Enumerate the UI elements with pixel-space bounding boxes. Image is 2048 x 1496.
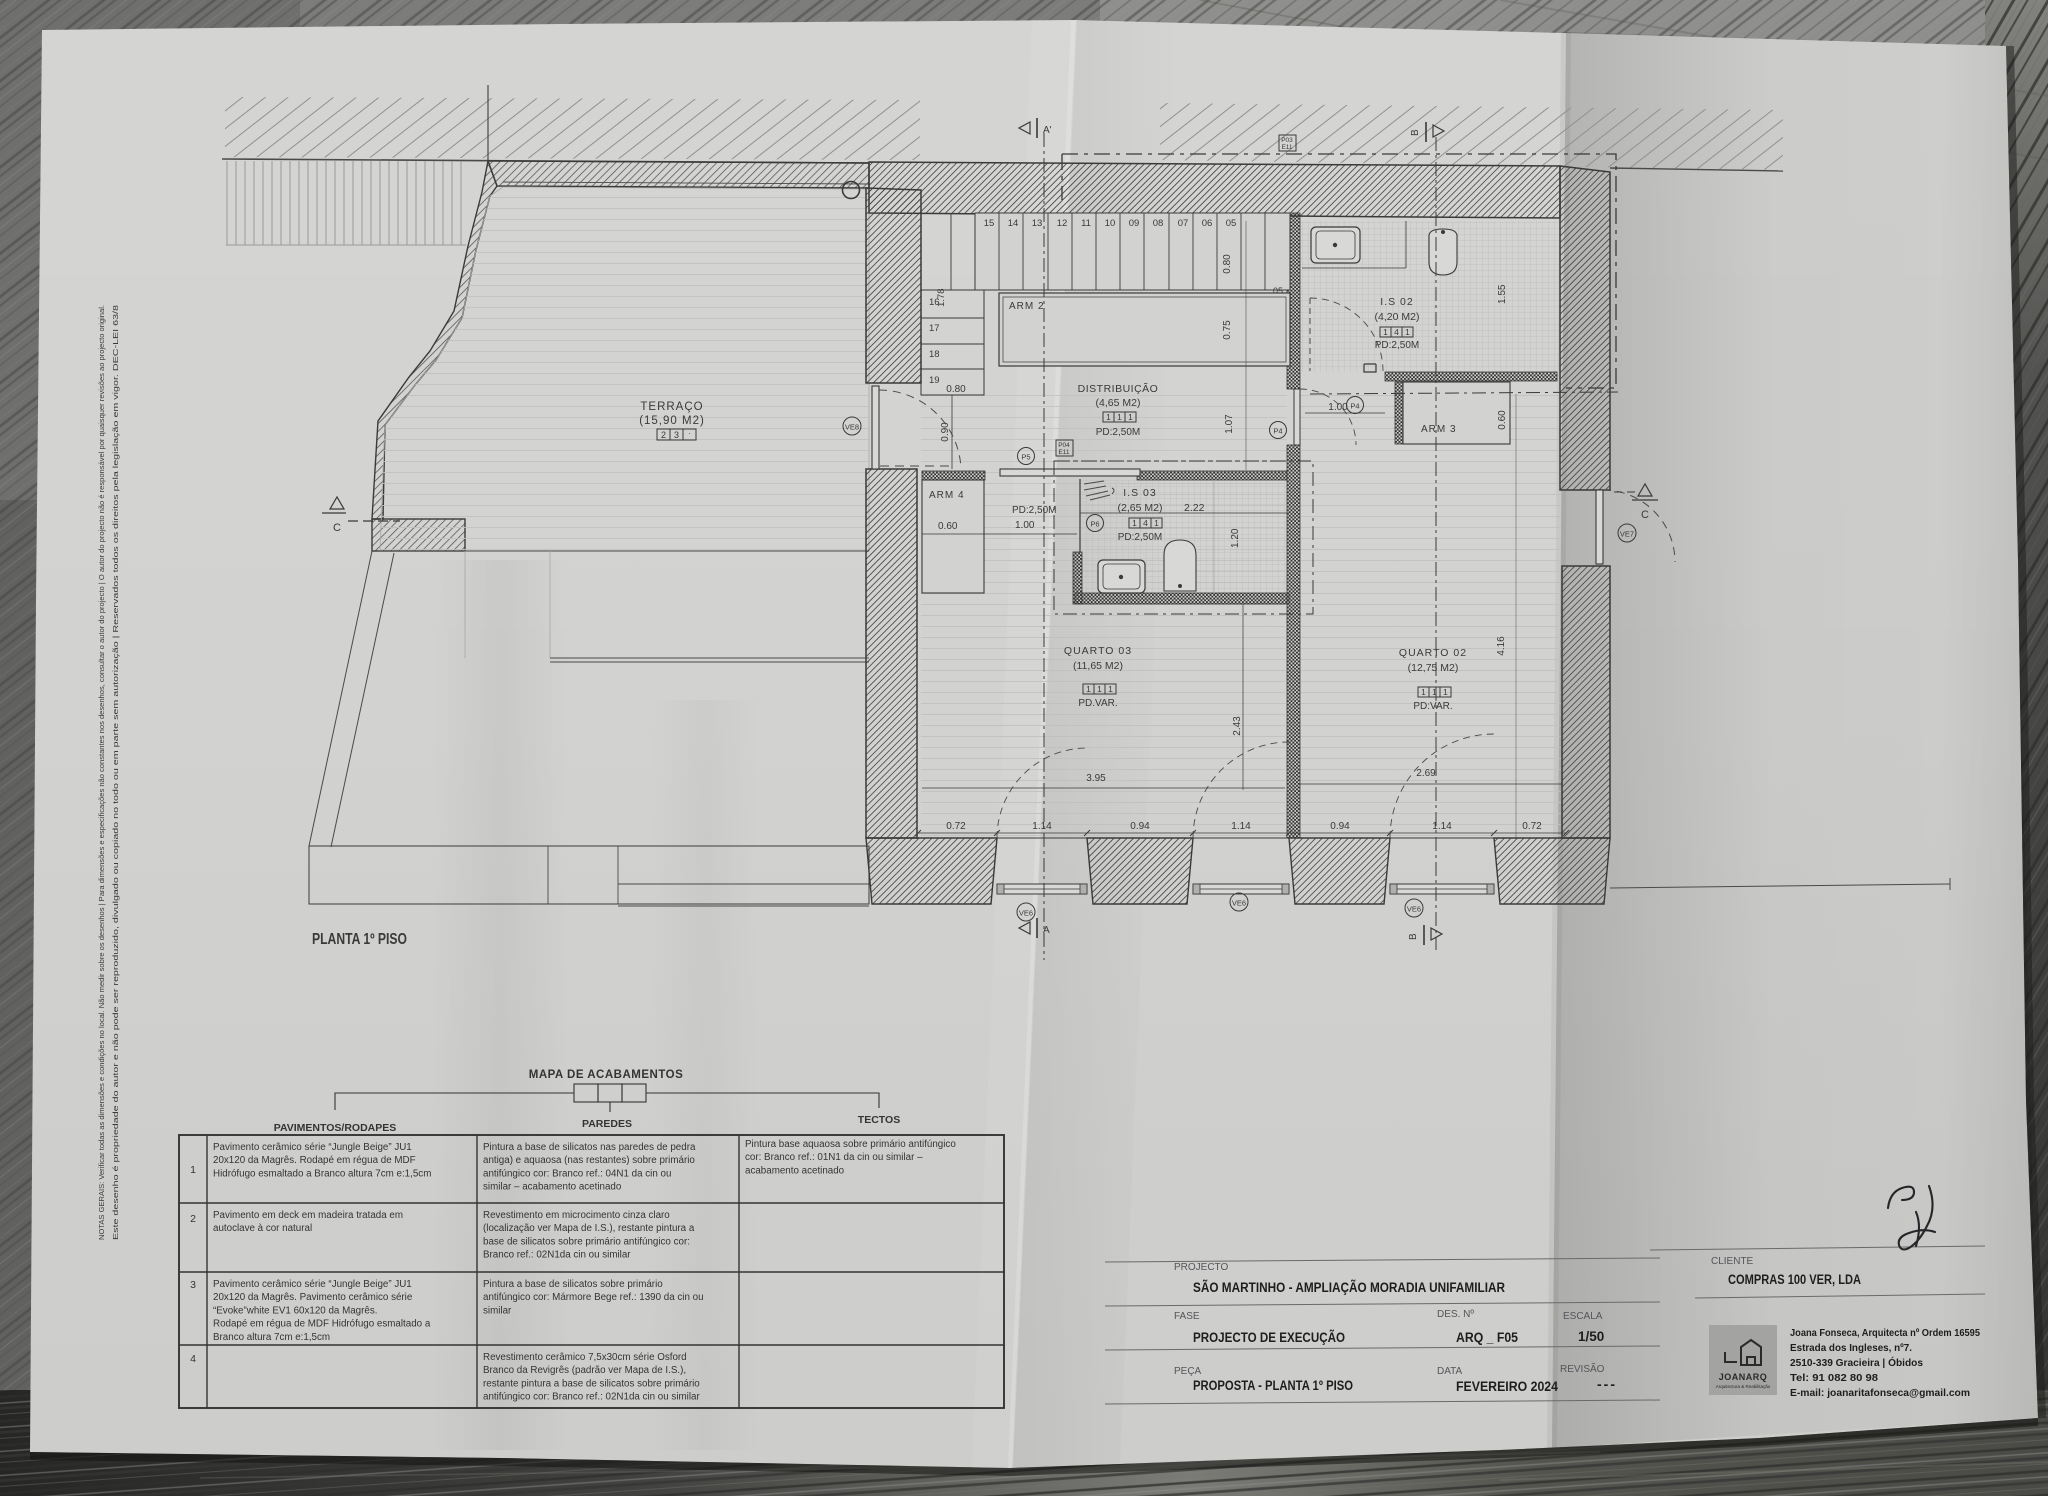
svg-text:1.14: 1.14	[1032, 821, 1052, 832]
svg-text:Rodapé em régua de MDF Hi: Rodapé em régua de MDF Hidrófugo esmalta…	[213, 1319, 431, 1330]
svg-text:base de silicatos sobre pr: base de silicatos sobre primário antifún…	[483, 1236, 690, 1247]
svg-text:P6: P6	[1090, 520, 1099, 529]
svg-text:VE7: VE7	[1620, 530, 1634, 539]
svg-text:05: 05	[1226, 218, 1237, 229]
svg-text:Branco ref.: 02N1da cin ou: Branco ref.: 02N1da cin ou similar	[483, 1250, 631, 1261]
svg-text:antifúngico cor: Branco ref: antifúngico cor: Branco ref.: 04N1 da ci…	[483, 1168, 671, 1179]
svg-text:PROJECTO DE EXECUÇÃO: PROJECTO DE EXECUÇÃO	[1193, 1330, 1345, 1345]
svg-text:E11: E11	[1058, 449, 1069, 456]
svg-text:REVISÃO: REVISÃO	[1560, 1362, 1605, 1375]
svg-text:18: 18	[929, 349, 940, 360]
svg-text:antiga) e aquaosa (nas res: antiga) e aquaosa (nas restantes) sobre …	[483, 1155, 695, 1166]
svg-text:1.14: 1.14	[1432, 821, 1452, 832]
svg-text:1.20: 1.20	[1230, 528, 1241, 548]
svg-text:E-mail: joanaritafonseca@gmail: E-mail: joanaritafonseca@gmail.com	[1790, 1387, 1970, 1399]
svg-text:Revestimento em microcimento: Revestimento em microcimento cinza claro	[483, 1210, 670, 1221]
svg-text:4: 4	[1143, 518, 1148, 528]
svg-text:A: A	[1043, 925, 1050, 936]
svg-text:4: 4	[1394, 327, 1399, 337]
svg-text:P04: P04	[1058, 442, 1070, 449]
svg-text:C: C	[333, 522, 341, 534]
svg-text:20x120 da Magrês. Pavimento: 20x120 da Magrês. Pavimento cerâmico sér…	[213, 1292, 413, 1303]
svg-text:P4: P4	[1273, 427, 1282, 436]
svg-text:1: 1	[1128, 412, 1133, 422]
svg-text:1: 1	[1443, 687, 1448, 697]
svg-text:3.95: 3.95	[1086, 773, 1106, 784]
svg-text:0.90: 0.90	[940, 422, 951, 442]
svg-text:DES. Nº: DES. Nº	[1437, 1309, 1474, 1320]
svg-text:1/50: 1/50	[1578, 1329, 1604, 1344]
svg-text:acabamento acetinado: acabamento acetinado	[745, 1165, 845, 1176]
svg-text:P5: P5	[1021, 453, 1030, 462]
svg-text:10: 10	[1105, 218, 1116, 229]
svg-text:PD:2,50M: PD:2,50M	[1012, 505, 1056, 516]
svg-text:JOANARQ: JOANARQ	[1719, 1372, 1768, 1382]
svg-text:Pintura base aquaosa sobre: Pintura base aquaosa sobre primário anti…	[745, 1139, 956, 1150]
svg-text:(2,65 M2): (2,65 M2)	[1118, 502, 1163, 514]
svg-text:0.94: 0.94	[1330, 821, 1350, 832]
svg-text:VE6: VE6	[1019, 909, 1033, 918]
svg-text:Hidrófugo esmaltado a Branc: Hidrófugo esmaltado a Branco altura 7cm …	[213, 1168, 431, 1179]
svg-text:I.S 03: I.S 03	[1123, 487, 1156, 499]
svg-text:1: 1	[1132, 518, 1137, 528]
svg-text:PD:2,50M: PD:2,50M	[1375, 340, 1419, 351]
svg-text:autoclave à cor natural: autoclave à cor natural	[213, 1223, 312, 1234]
svg-text:14: 14	[1008, 218, 1019, 229]
svg-text:Pavimento em deck em madei: Pavimento em deck em madeira tratada em	[213, 1210, 403, 1221]
svg-text:PD:2,50M: PD:2,50M	[1118, 532, 1162, 543]
svg-text:1.55: 1.55	[1497, 284, 1508, 304]
svg-text:C: C	[1641, 509, 1649, 521]
svg-text:(12,75 M2): (12,75 M2)	[1408, 662, 1459, 674]
svg-text:0.72: 0.72	[946, 821, 966, 832]
svg-text:FASE: FASE	[1174, 1311, 1200, 1322]
svg-text:PD:VAR.: PD:VAR.	[1413, 701, 1452, 712]
svg-text:B: B	[1408, 933, 1419, 940]
svg-text:1.14: 1.14	[1231, 821, 1251, 832]
svg-text:Pavimento cerâmico série “J: Pavimento cerâmico série “Jungle Beige” …	[213, 1279, 412, 1290]
svg-text:restante pintura a base de: restante pintura a base de silicatos sob…	[483, 1378, 700, 1389]
svg-text:Pavimento cerâmico série “J: Pavimento cerâmico série “Jungle Beige” …	[213, 1142, 412, 1153]
svg-text:06: 06	[1202, 218, 1213, 229]
svg-text:Revestimento cerâmico 7,5x30: Revestimento cerâmico 7,5x30cm série Osf…	[483, 1352, 687, 1363]
svg-text:0.60: 0.60	[938, 521, 958, 532]
svg-text:Branco altura 7cm e:1,5cm: Branco altura 7cm e:1,5cm	[213, 1332, 330, 1343]
svg-text:PD.VAR.: PD.VAR.	[1078, 698, 1117, 709]
svg-text:VE8: VE8	[845, 423, 859, 432]
svg-text:MAPA DE ACABAMENTOS: MAPA DE ACABAMENTOS	[529, 1069, 684, 1081]
svg-text:Branco da Revigrês (padrão: Branco da Revigrês (padrão ver Mapa de I…	[483, 1365, 686, 1376]
svg-text:0.75: 0.75	[1222, 320, 1233, 340]
svg-text:DATA: DATA	[1437, 1366, 1463, 1377]
svg-text:ARQ _ F05: ARQ _ F05	[1456, 1330, 1518, 1345]
svg-text:15: 15	[984, 218, 995, 229]
svg-text:Pintura a base de silicato: Pintura a base de silicatos nas paredes …	[483, 1142, 696, 1153]
svg-text:COMPRAS 100 VER, LDA: COMPRAS 100 VER, LDA	[1728, 1272, 1861, 1287]
svg-text:12: 12	[1057, 218, 1068, 229]
svg-text:0.94: 0.94	[1130, 821, 1150, 832]
svg-text:1: 1	[1108, 684, 1113, 694]
svg-text:11: 11	[1081, 218, 1091, 229]
svg-text:07: 07	[1178, 218, 1189, 229]
svg-text:Arquitectura & Reabilitação: Arquitectura & Reabilitação	[1716, 1384, 1771, 1389]
svg-text:4.16: 4.16	[1496, 636, 1507, 656]
svg-text:PAVIMENTOS/RODAPES: PAVIMENTOS/RODAPES	[274, 1122, 397, 1134]
svg-text:1.78: 1.78	[936, 289, 947, 308]
svg-text:1: 1	[1383, 327, 1388, 337]
svg-text:(4,65 M2): (4,65 M2)	[1096, 397, 1141, 409]
svg-text:A': A'	[1043, 125, 1052, 136]
svg-text:1: 1	[1405, 327, 1410, 337]
svg-text:0.60: 0.60	[1497, 410, 1508, 430]
svg-text:FEVEREIRO 2024: FEVEREIRO 2024	[1456, 1379, 1558, 1394]
svg-text:(15,90 M2): (15,90 M2)	[639, 415, 705, 427]
svg-text:antifúngico cor: Branco ref: antifúngico cor: Branco ref.: 02N1da cin…	[483, 1392, 700, 1403]
svg-text:ARM 2: ARM 2	[1009, 301, 1045, 312]
svg-text:17: 17	[929, 323, 940, 334]
svg-text:2510-339 Gracieira | Óbidos: 2510-339 Gracieira | Óbidos	[1790, 1356, 1923, 1369]
svg-text:2.43: 2.43	[1232, 716, 1243, 736]
svg-text:08: 08	[1153, 218, 1164, 229]
svg-text:PLANTA 1º PISO: PLANTA 1º PISO	[312, 931, 407, 948]
svg-text:ARM 3: ARM 3	[1421, 424, 1457, 435]
svg-text:0.80: 0.80	[946, 384, 966, 395]
svg-text:E11: E11	[1281, 144, 1292, 151]
svg-text:1.00: 1.00	[1015, 520, 1035, 531]
svg-text:PAREDES: PAREDES	[582, 1118, 632, 1130]
svg-text:1: 1	[1106, 412, 1111, 422]
svg-text:09: 09	[1129, 218, 1140, 229]
svg-text:Pintura a base de silicato: Pintura a base de silicatos sobre primár…	[483, 1279, 663, 1290]
svg-text:similar – acabamento acetin: similar – acabamento acetinado	[483, 1182, 622, 1193]
svg-text:cor: Branco ref.: 01N1 da: cor: Branco ref.: 01N1 da cin ou similar…	[745, 1152, 923, 1163]
svg-text:I.S 02: I.S 02	[1380, 296, 1413, 308]
svg-text:ARM 4: ARM 4	[929, 490, 965, 501]
svg-text:PROJECTO: PROJECTO	[1174, 1262, 1228, 1273]
svg-text:NOTAS GERAIS: Verificar todas: NOTAS GERAIS: Verificar todas as dimensõ…	[97, 305, 106, 1240]
svg-text:Este desenho é propriedade do: Este desenho é propriedade do autor e nã…	[111, 305, 120, 1240]
svg-text:---: ---	[1597, 1376, 1617, 1392]
svg-text:3: 3	[190, 1279, 196, 1291]
svg-text:1: 1	[1117, 412, 1122, 422]
svg-text:ESCALA: ESCALA	[1563, 1311, 1603, 1322]
svg-text:Tel: 91 082 80 98: Tel: 91 082 80 98	[1790, 1372, 1878, 1384]
svg-text:0.80: 0.80	[1222, 254, 1233, 274]
svg-text:PD:2,50M: PD:2,50M	[1096, 427, 1140, 438]
svg-text:1: 1	[1154, 518, 1159, 528]
svg-text:VE6: VE6	[1232, 899, 1246, 908]
svg-text:2.69: 2.69	[1416, 768, 1436, 779]
svg-text:2.22: 2.22	[1184, 502, 1205, 514]
svg-text:QUARTO 03: QUARTO 03	[1064, 645, 1132, 657]
svg-text:1.07: 1.07	[1224, 414, 1235, 434]
svg-text:1: 1	[1421, 687, 1426, 697]
svg-text:20x120 da Magrês. Rodapé e: 20x120 da Magrês. Rodapé em régua de MDF	[213, 1155, 416, 1166]
svg-text:P03: P03	[1281, 137, 1293, 144]
svg-text:1: 1	[1097, 684, 1102, 694]
svg-text:1.00: 1.00	[1328, 402, 1348, 413]
svg-text:(11,65 M2): (11,65 M2)	[1073, 660, 1123, 672]
svg-text:4: 4	[190, 1353, 196, 1365]
svg-text:B: B	[1410, 129, 1421, 136]
svg-text:·: ·	[688, 429, 691, 438]
svg-text:2: 2	[661, 430, 666, 440]
svg-text:1: 1	[190, 1164, 196, 1176]
svg-text:CLIENTE: CLIENTE	[1711, 1256, 1754, 1267]
svg-text:PEÇA: PEÇA	[1174, 1366, 1202, 1377]
svg-text:(4,20 M2): (4,20 M2)	[1375, 311, 1420, 323]
svg-text:similar: similar	[483, 1305, 512, 1316]
svg-text:VE6: VE6	[1407, 905, 1421, 914]
svg-text:3: 3	[674, 430, 679, 440]
svg-text:TERRAÇO: TERRAÇO	[640, 401, 703, 413]
svg-text:Joana Fonseca, Arquitecta nº O: Joana Fonseca, Arquitecta nº Ordem 16595	[1790, 1327, 1980, 1339]
svg-text:antifúngico cor: Mármore Be: antifúngico cor: Mármore Bege ref.: 1390…	[483, 1292, 704, 1303]
svg-text:SÃO MARTINHO - AMPLIAÇÃO MO: SÃO MARTINHO - AMPLIAÇÃO MORADIA UNIFAMI…	[1193, 1280, 1505, 1295]
svg-text:P4: P4	[1350, 402, 1359, 411]
svg-text:(localização ver Mapa de I: (localização ver Mapa de I.S.), restante…	[483, 1223, 695, 1234]
svg-text:“Evoke”white EV1 60x120 da: “Evoke”white EV1 60x120 da Magrês.	[213, 1305, 377, 1316]
svg-text:1: 1	[1086, 684, 1091, 694]
svg-text:13: 13	[1032, 218, 1043, 229]
svg-text:DISTRIBUIÇÃO: DISTRIBUIÇÃO	[1078, 382, 1159, 395]
svg-text:19: 19	[929, 375, 940, 386]
svg-text:QUARTO 02: QUARTO 02	[1399, 647, 1467, 659]
svg-text:2: 2	[190, 1213, 196, 1225]
svg-text:PROPOSTA - PLANTA 1º PISO: PROPOSTA - PLANTA 1º PISO	[1193, 1378, 1353, 1393]
svg-text:TECTOS: TECTOS	[858, 1114, 900, 1126]
svg-text:0.72: 0.72	[1522, 821, 1542, 832]
svg-text:Estrada dos Ingleses, nº7.: Estrada dos Ingleses, nº7.	[1790, 1342, 1912, 1354]
